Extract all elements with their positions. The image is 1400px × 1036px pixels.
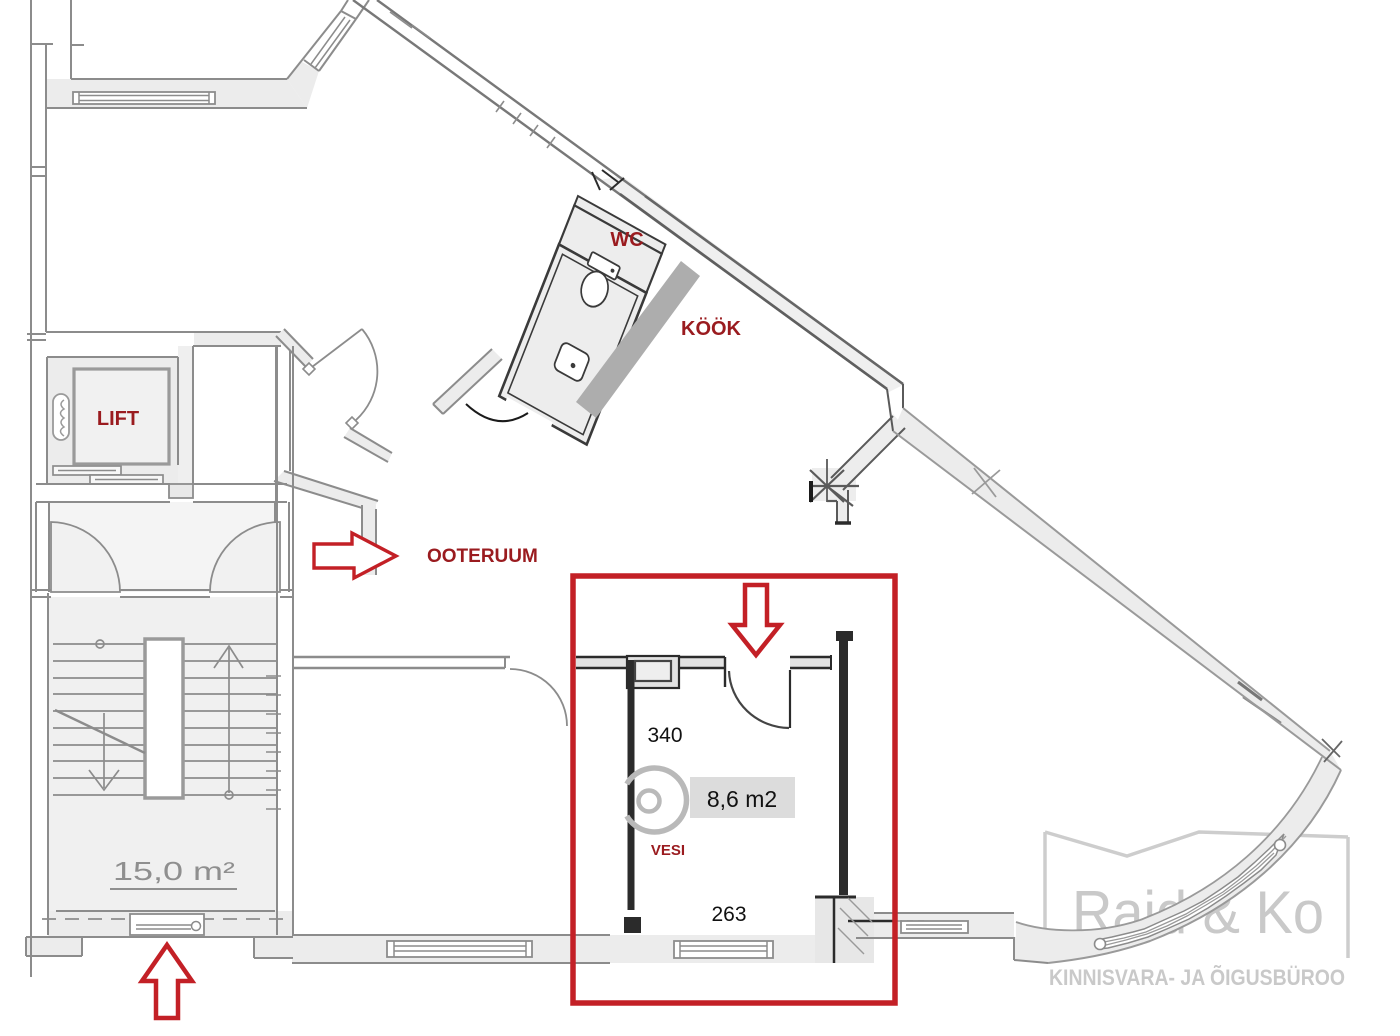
svg-text:263: 263 [711, 903, 746, 926]
svg-text:KÖÖK: KÖÖK [681, 317, 742, 340]
svg-text:15,0 m²: 15,0 m² [113, 856, 235, 886]
svg-text:LIFT: LIFT [97, 408, 139, 430]
svg-text:VESI: VESI [651, 842, 685, 859]
svg-text:OOTERUUM: OOTERUUM [427, 546, 538, 567]
svg-text:KINNISVARA- JA ÕIGUSBÜROO: KINNISVARA- JA ÕIGUSBÜROO [1049, 965, 1345, 990]
svg-text:WC: WC [610, 229, 643, 251]
svg-text:8,6 m2: 8,6 m2 [707, 786, 777, 812]
svg-text:340: 340 [647, 724, 682, 747]
